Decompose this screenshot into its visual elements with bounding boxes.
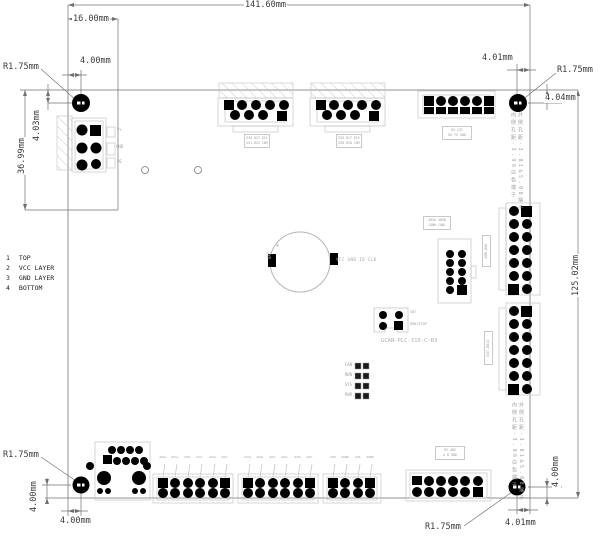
dim-hole-offset-y-br: 4.00mm: [552, 455, 561, 488]
di1-label-block: DI0 DI2 DI4 DI1 DI3 COM: [244, 134, 270, 148]
rs485-label-block: RS-485 A B GND: [435, 446, 465, 460]
dim-hole-offset-x-tl: 4.00mm: [79, 57, 112, 66]
do-connector-1: [499, 203, 540, 295]
legend-label: VCC LAYER: [19, 265, 54, 272]
legend-num: 4: [6, 285, 10, 292]
dim-total-width: 141.60mm: [244, 1, 287, 10]
di2-label-block: DI5 DI7 DI9 DI6 DI8 COM: [336, 134, 362, 148]
comm-header: [438, 239, 476, 303]
terminal-pin-label: AGND: [363, 456, 377, 459]
jumper-runstop-label: RUN/STOP: [410, 323, 427, 327]
dim-hole-offset-x-tr: 4.01mm: [481, 54, 514, 63]
rtc-pin-labels: VCC GND IO CLK: [336, 258, 377, 262]
legend-row-bottom: 4 BOTTOM: [6, 285, 54, 292]
terminal-pin-label: AI1+: [168, 456, 182, 459]
do-connector-2: [499, 303, 540, 395]
layer-legend: 1 TOP 2 VCC LAYER 3 GND LAYER 4 BOTTOM: [6, 255, 54, 295]
dim-hole-offset-y-bl: 4.00mm: [30, 480, 39, 513]
do1-label-block: DO0-DO6: [482, 235, 491, 267]
mounting-hole-bottom-left: [73, 477, 90, 494]
dimension-lines: [20, 3, 580, 526]
dim-hole-offset-x-bl: 4.00mm: [59, 517, 92, 526]
legend-label: BOTTOM: [19, 285, 42, 292]
battery-holder: [268, 232, 338, 292]
battery-polarity: +: [276, 244, 279, 249]
dim-hole-radius-bl: R1.75mm: [2, 451, 40, 460]
terminal-pin-label: AI1-: [193, 456, 207, 459]
legend-label: TOP: [19, 255, 31, 262]
legend-num: 3: [6, 275, 10, 282]
board-name: GCAN-PLC-310-C-B3: [381, 339, 437, 345]
di-connector-1: [218, 83, 293, 132]
di2-row2: DI6 DI8 COM: [337, 141, 361, 146]
led-label-run: RUN: [330, 373, 352, 377]
terminal-pin-label: AI5-: [303, 456, 317, 459]
led-label-sys: SYS: [330, 383, 352, 387]
dim-hole-radius-br: R1.75mm: [424, 523, 462, 532]
terminal-pin-label: AI4-: [278, 456, 292, 459]
rs232-connector: [418, 91, 495, 118]
terminal-block-3: [323, 464, 381, 503]
legend-row-vcc: 2 VCC LAYER: [6, 265, 54, 272]
dim-hole-offset-y-tr: 4.04mm: [544, 94, 577, 103]
legend-row-top: 1 TOP: [6, 255, 54, 262]
mounting-hole-top-left: [72, 94, 90, 112]
dim-left-section-height: 36.99mm: [18, 137, 27, 175]
note-vertical-br-inner: 内侧孔距-3.96白色端子: [511, 402, 516, 490]
do2-label-block: DO7-DO13: [484, 331, 493, 365]
comm-row2: CANH CANL: [424, 223, 450, 228]
ethernet-jack: [86, 442, 151, 500]
legend-num: 1: [6, 255, 10, 262]
note-vertical-tr-outer: 外侧孔距-3.81&5.08端子: [517, 112, 522, 212]
dim-hole-offset-y-tl: 4.03mm: [33, 109, 42, 142]
di-connector-2: [310, 83, 385, 132]
note-vertical-tr-inner: 内侧孔距-3.96白色端子: [510, 112, 515, 200]
terminal-block-1: [153, 464, 233, 503]
dim-hole-radius-tr: R1.75mm: [556, 66, 594, 75]
comm-label-block: 485A 485B CANH CANL: [423, 216, 451, 230]
di1-row2: DI1 DI3 COM: [245, 141, 269, 146]
led-label-can: CAN: [330, 363, 352, 367]
legend-num: 2: [6, 265, 10, 272]
power-connector: [57, 116, 115, 172]
jumper-pin-label: INT: [410, 311, 416, 315]
terminal-block-4: [406, 470, 491, 501]
via-holes: [142, 167, 202, 174]
terminal-pin-label: AI2-: [218, 456, 232, 459]
terminal-block-2: [238, 464, 318, 503]
power-pin-gnd: GND: [116, 145, 123, 149]
dim-hole-offset-x-br: 4.01mm: [504, 519, 537, 528]
rs232-row2: RX TX GND: [443, 133, 471, 138]
battery-label: BAT: [268, 252, 272, 259]
terminal-pin-label: AGND: [338, 456, 352, 459]
rs485-row2: A B GND: [436, 453, 464, 458]
dim-left-inset: 16.00mm: [72, 15, 110, 24]
status-leds: [355, 363, 369, 399]
led-label-pwr: PWR: [330, 393, 352, 397]
legend-row-gnd: 3 GND LAYER: [6, 275, 54, 282]
terminal-pin-label: AI4+: [253, 456, 267, 459]
mounting-hole-top-right: [509, 94, 527, 112]
power-pin-vplus: V+: [117, 128, 122, 132]
dim-hole-radius-tl: R1.75mm: [2, 63, 40, 72]
runstop-jumper: [374, 308, 408, 332]
rs232-label-block: RS-232 RX TX GND: [442, 126, 472, 140]
legend-label: GND LAYER: [19, 275, 54, 282]
note-vertical-br-outer: 外侧孔距-3.81&5.08端子: [518, 402, 523, 502]
dim-total-height: 125.02mm: [572, 254, 581, 297]
pcb-dimension-drawing: 141.60mm 16.00mm R1.75mm 4.00mm 4.03mm 3…: [0, 0, 600, 538]
power-pin-pe: PE: [117, 160, 122, 164]
